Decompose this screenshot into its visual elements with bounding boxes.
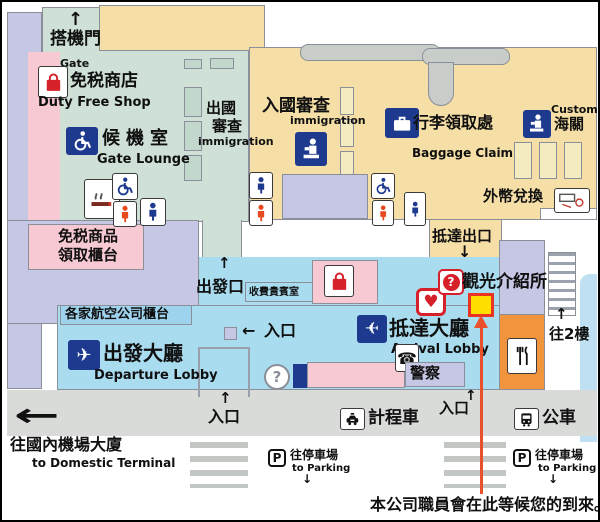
women-toilet-icon xyxy=(249,200,273,226)
exit-immigration-booth xyxy=(184,87,202,117)
currency-exchange-jp: 外幣兌換 xyxy=(483,188,543,205)
duty-free-pickup-jp2: 領取櫃台 xyxy=(58,247,118,264)
domestic-left-arrow: ← xyxy=(14,398,60,434)
wheelchair-icon xyxy=(66,127,98,155)
entrance-up-arrow: ↑ xyxy=(465,389,477,405)
departure-immigration-jp1: 出國 xyxy=(206,100,236,117)
parking-icon: P xyxy=(513,449,531,467)
departure-gate-up-arrow: ↑ xyxy=(218,255,231,272)
pedestrian-crossing-right xyxy=(444,442,506,488)
zone-road xyxy=(7,390,597,436)
baggage-carousel-stem xyxy=(428,62,454,106)
men-toilet-icon xyxy=(140,198,166,226)
entrance-marker-square xyxy=(224,327,237,340)
customs-counter xyxy=(564,142,582,179)
departure-lobby-jp: 出發大廳 xyxy=(103,342,183,364)
entry-immigration-booth xyxy=(340,151,354,175)
arrival-lobby-jp: 抵達大廳 xyxy=(389,317,469,339)
customs-counter xyxy=(539,142,557,179)
information-question-icon: ? xyxy=(264,364,290,390)
zone-tan-top-corridor xyxy=(99,5,265,51)
to-parking-jp: 往停車場 xyxy=(290,449,338,462)
entry-immigration-booth xyxy=(340,87,354,115)
entrance-label-jp: 入口 xyxy=(264,322,296,340)
women-toilet-icon xyxy=(372,200,394,226)
shopping-bag-icon xyxy=(324,265,354,297)
to-parking-en: to Parking xyxy=(292,463,350,474)
departure-plane-icon: ✈ xyxy=(68,340,100,370)
men-toilet-icon xyxy=(404,192,426,226)
departure-immigration-jp2: 審查 xyxy=(212,118,242,135)
question-circle: ? xyxy=(443,274,460,291)
checkin-booth xyxy=(184,59,202,69)
restaurant-icon xyxy=(507,338,537,374)
departure-gate-jp: 出發口 xyxy=(196,278,244,296)
bus-icon xyxy=(514,408,539,430)
information-question-icon: ? xyxy=(438,269,464,295)
to-parking-en: to Parking xyxy=(538,463,596,474)
to-parking-down-arrow: ↓ xyxy=(548,473,558,486)
checkin-booth xyxy=(210,58,234,69)
wheelchair-icon xyxy=(371,173,395,199)
staff-waiting-note: 本公司職員會在此等候您的到來。 xyxy=(370,496,600,514)
shopping-bag-icon xyxy=(38,66,68,98)
meeting-point-pointer-line xyxy=(480,327,483,494)
departure-immigration-en: immigration xyxy=(198,136,274,148)
to-2f-jp: 往2樓 xyxy=(549,326,589,343)
tourist-info-jp: 觀光介紹所 xyxy=(462,273,547,292)
to-parking-jp: 往停車場 xyxy=(535,449,583,462)
immigration-officer-icon xyxy=(295,132,327,166)
arrival-exit-down-arrow: ↓ xyxy=(458,243,471,261)
currency-exchange-icon xyxy=(554,188,590,213)
parking-icon: P xyxy=(268,449,286,467)
airport-floor-map: ↑ 搭機門 Gate 免税商店 Duty Free Shop 候機室 Gate … xyxy=(0,0,600,522)
entrance-label-jp: 入口 xyxy=(208,408,240,426)
arrival-plane-icon: ✈ xyxy=(357,315,387,343)
to-2f-up-arrow: ↑ xyxy=(555,306,568,323)
zone-arrival-pink-band xyxy=(307,362,405,388)
baggage-claim-en: Baggage Claim xyxy=(412,147,513,160)
baggage-carousel xyxy=(300,44,440,61)
customs-officer-icon xyxy=(523,110,551,138)
wheelchair-icon xyxy=(112,173,138,200)
info-counter-block xyxy=(293,364,307,388)
gate-lounge-jp: 候機室 xyxy=(102,129,174,149)
meeting-point-marker xyxy=(468,293,494,317)
airline-counters-jp: 各家航空公司櫃台 xyxy=(65,308,169,323)
to-parking-down-arrow: ↓ xyxy=(302,473,312,486)
taxi-icon xyxy=(340,408,365,430)
pedestrian-crossing-left xyxy=(190,442,248,488)
to-domestic-en: to Domestic Terminal xyxy=(32,457,175,470)
to-domestic-jp: 往國內機場大廈 xyxy=(10,436,122,454)
duty-free-shop-jp: 免税商店 xyxy=(70,72,138,91)
gate-label-jp: 搭機門 xyxy=(50,30,101,49)
police-jp: 警察 xyxy=(410,365,440,382)
departure-lobby-en: Departure Lobby xyxy=(94,369,218,384)
customs-counter xyxy=(514,142,532,179)
men-toilet-icon xyxy=(249,172,273,199)
baggage-claim-jp: 行李領取處 xyxy=(413,114,493,132)
women-toilet-icon xyxy=(113,201,137,227)
bus-jp: 公車 xyxy=(542,409,576,428)
duty-free-shop-en: Duty Free Shop xyxy=(38,96,151,111)
customs-jp: 海關 xyxy=(554,116,584,133)
back-office-room xyxy=(282,174,368,219)
entrance-up-arrow: ↑ xyxy=(219,390,232,407)
duty-free-pickup-jp1: 免税商品 xyxy=(58,228,118,245)
paid-vip-lounge-jp: 收費貴賓室 xyxy=(249,287,299,298)
gate-lounge-en: Gate Lounge xyxy=(97,153,190,168)
entrance-left-arrow: ← xyxy=(242,322,255,340)
taxi-jp: 計程車 xyxy=(368,409,419,428)
arrival-immigration-en: immigration xyxy=(290,115,366,127)
gate-up-arrow: ↑ xyxy=(68,10,83,30)
